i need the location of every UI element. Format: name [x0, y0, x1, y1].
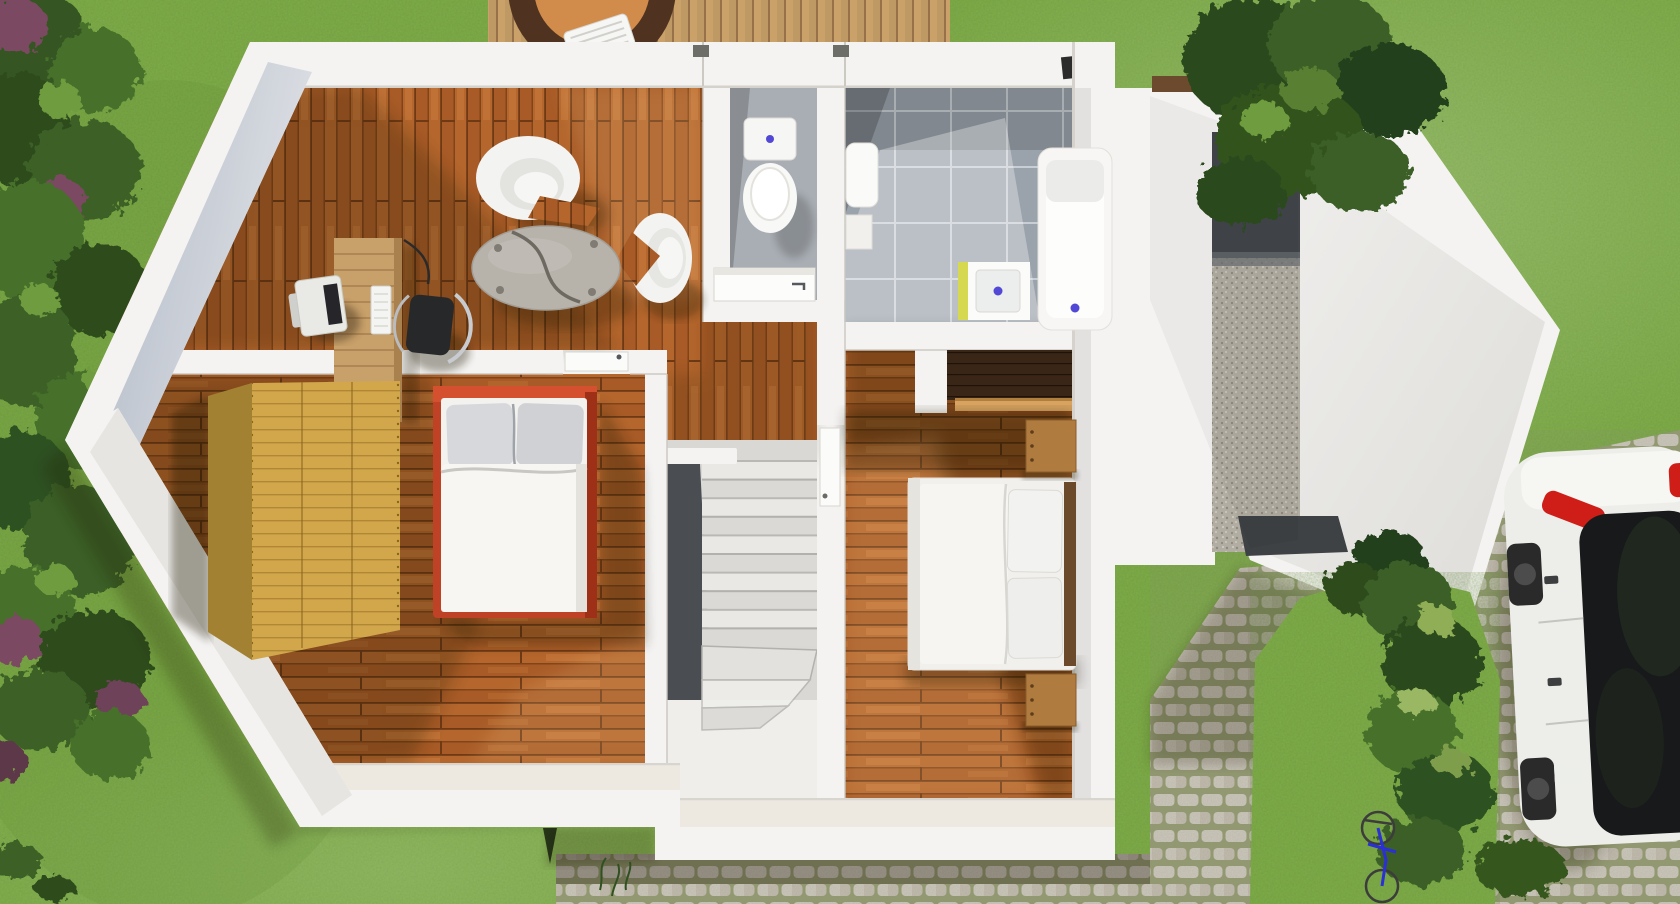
roof-vent [693, 45, 709, 57]
roof-vent [833, 45, 849, 57]
wc-door [714, 268, 815, 301]
door-handle [1547, 678, 1561, 687]
wall-top [250, 42, 1115, 88]
bathroom-wall-south [845, 322, 1075, 350]
nightstand-top [1022, 420, 1078, 480]
wardrobe [172, 381, 400, 660]
nightstand-bottom [1022, 674, 1078, 732]
floor-plan-render [0, 0, 1680, 904]
bathtub [1038, 148, 1112, 330]
bed-left [433, 386, 646, 645]
washbasin [958, 262, 1030, 320]
bed-right [905, 478, 1079, 686]
bedroom-left-door [565, 352, 628, 371]
closet-pillar [915, 350, 947, 413]
bedroom-right-door [820, 428, 840, 506]
wc-wall-right [817, 88, 845, 300]
wall-bedroom-left [645, 374, 667, 763]
staircase [663, 440, 817, 802]
door-handle [1544, 576, 1558, 585]
stair-treads [702, 460, 817, 646]
wc-wall-bottom [703, 300, 845, 322]
